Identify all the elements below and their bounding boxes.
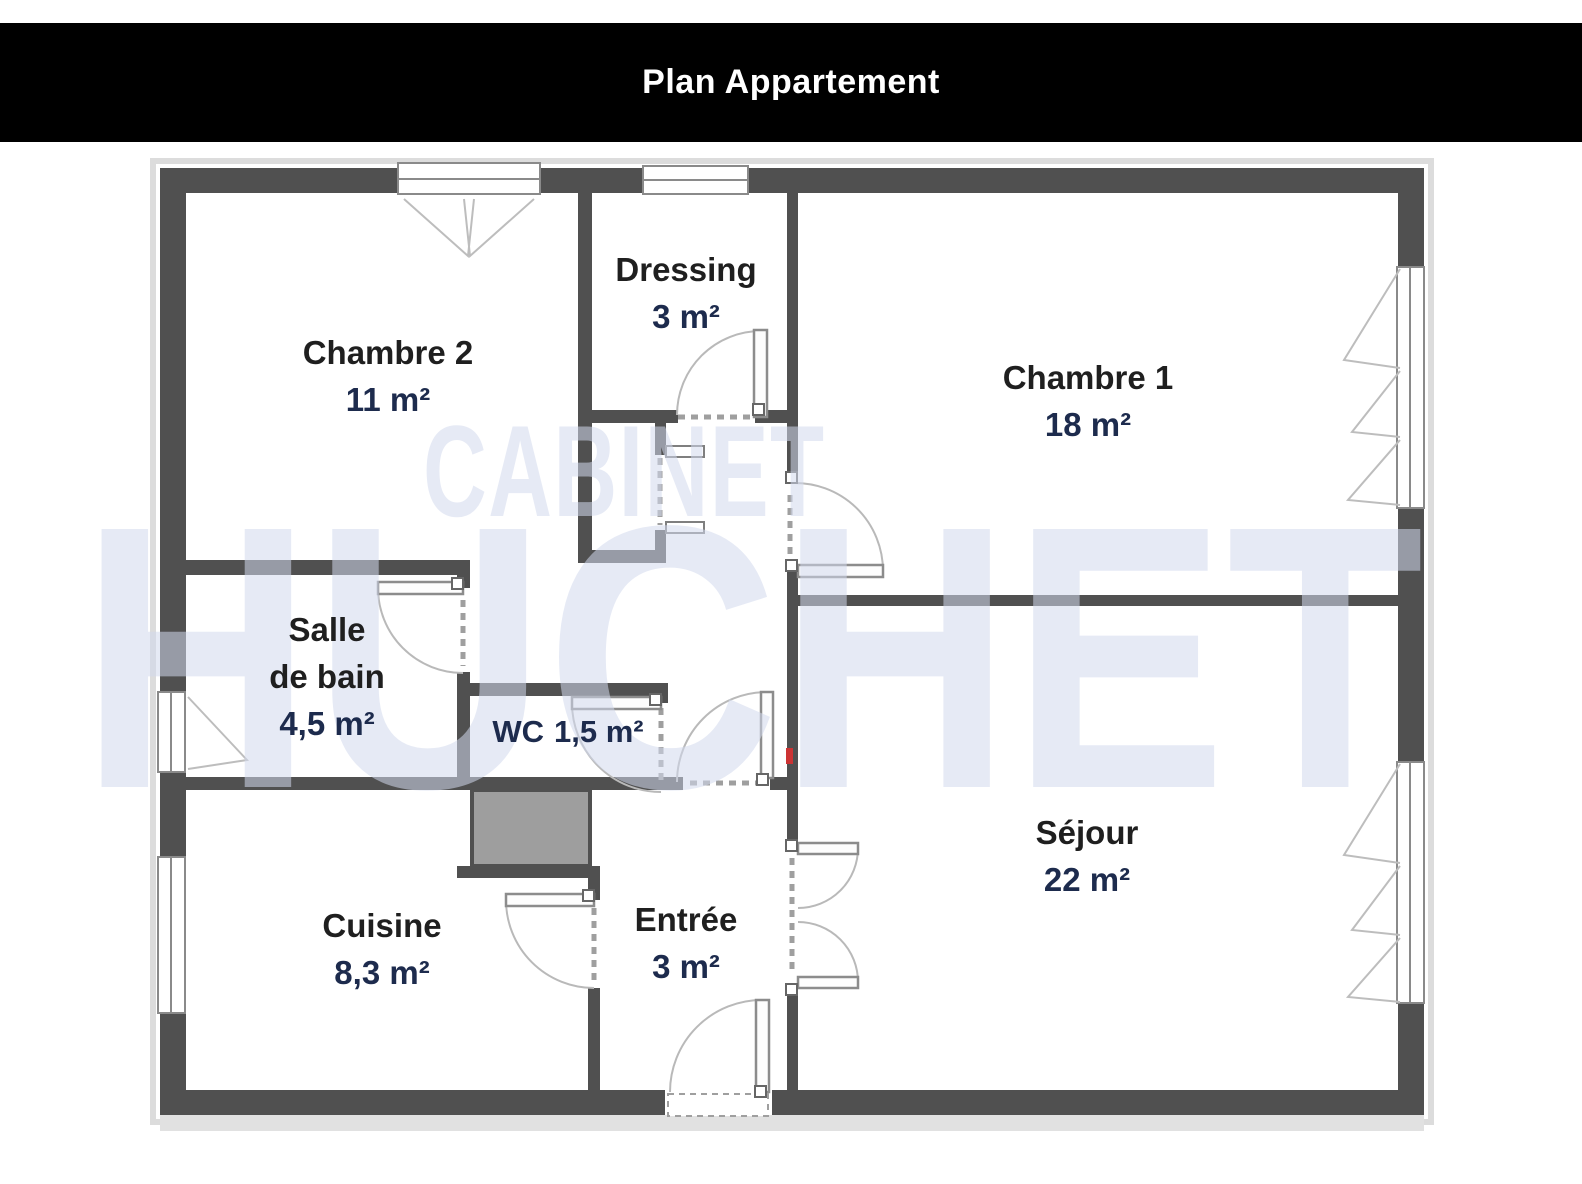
closet-shelves xyxy=(666,446,704,533)
technical-shaft xyxy=(472,790,590,866)
window-sejour-right xyxy=(1344,762,1424,1003)
floor-plan xyxy=(0,0,1582,1184)
room-label-sejour: Séjour 22 m² xyxy=(1036,810,1139,904)
room-area: 3 m² xyxy=(615,294,756,341)
room-name: Dressing xyxy=(615,247,756,294)
room-area: 18 m² xyxy=(1003,402,1174,449)
room-name: Chambre 2 xyxy=(303,330,474,377)
page: Plan Appartement CABINET HUCHET xyxy=(0,0,1582,1184)
room-label-dressing: Dressing 3 m² xyxy=(615,247,756,341)
room-label-entree: Entrée 3 m² xyxy=(635,897,738,991)
room-name: Entrée xyxy=(635,897,738,944)
room-label-cuisine: Cuisine 8,3 m² xyxy=(322,903,441,997)
window-dressing-top xyxy=(643,166,748,194)
window-chambre2-top xyxy=(398,163,540,256)
room-label-chambre1: Chambre 1 18 m² xyxy=(1003,355,1174,449)
room-area: 1,5 m² xyxy=(554,710,644,754)
room-label-salle-de-bain: Salle de bain 4,5 m² xyxy=(269,607,385,748)
red-marker xyxy=(786,748,793,764)
room-name: Salle de bain xyxy=(269,607,385,701)
room-name: WC xyxy=(492,710,544,754)
room-name: Chambre 1 xyxy=(1003,355,1174,402)
room-area: 8,3 m² xyxy=(322,950,441,997)
room-label-wc: WC 1,5 m² xyxy=(492,710,643,754)
window-salledebain-left xyxy=(158,692,247,772)
room-area: 22 m² xyxy=(1036,857,1139,904)
room-name: Séjour xyxy=(1036,810,1139,857)
room-name: Cuisine xyxy=(322,903,441,950)
window-chambre1-right xyxy=(1344,267,1424,508)
room-area: 3 m² xyxy=(635,944,738,991)
room-area: 4,5 m² xyxy=(269,701,385,748)
window-cuisine-left xyxy=(158,857,185,1013)
room-area: 11 m² xyxy=(303,377,474,424)
room-label-chambre2: Chambre 2 11 m² xyxy=(303,330,474,424)
